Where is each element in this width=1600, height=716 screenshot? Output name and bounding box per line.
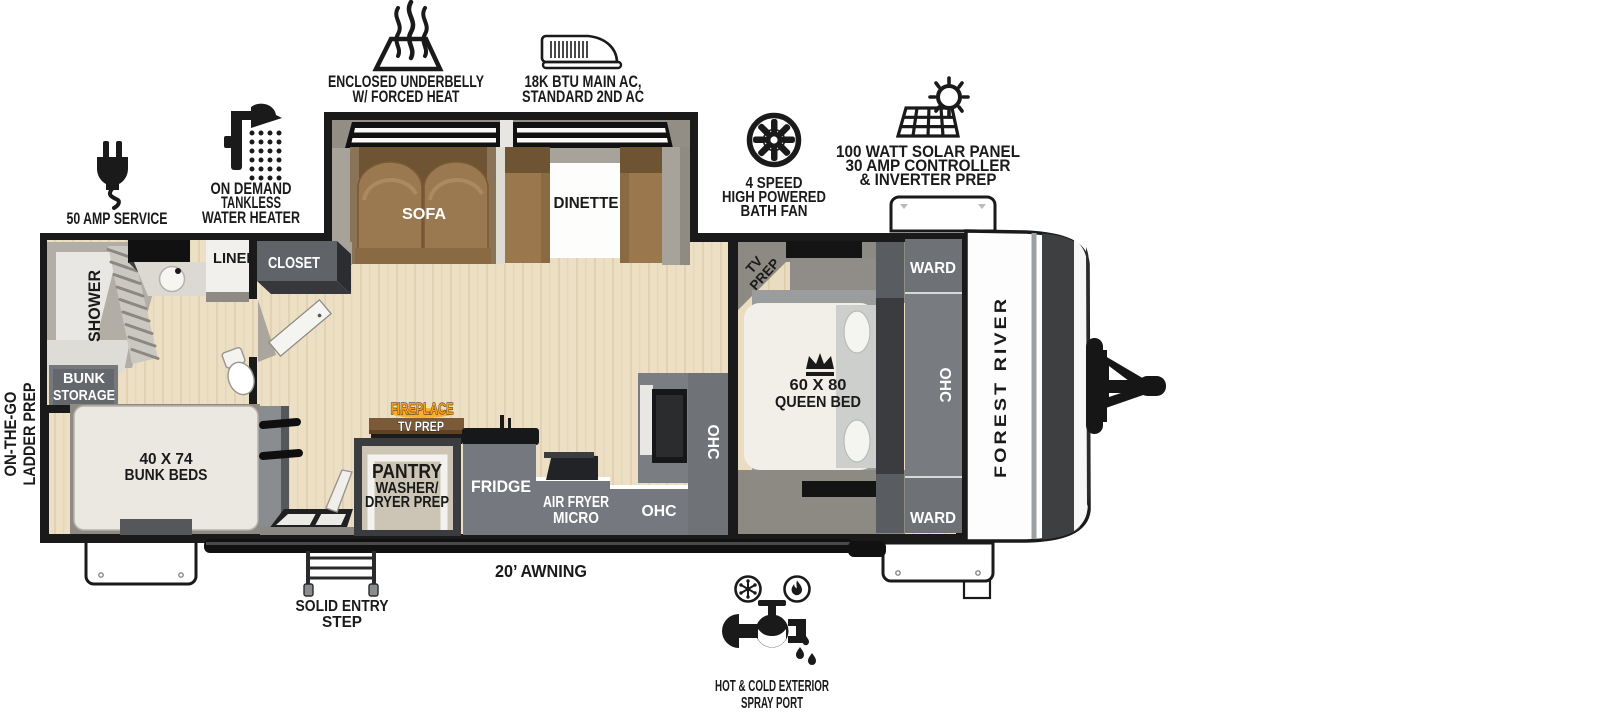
svg-text:MICRO: MICRO <box>553 510 599 527</box>
svg-text:TV PREP: TV PREP <box>398 419 444 434</box>
svg-text:& INVERTER PREP: & INVERTER PREP <box>860 170 997 189</box>
svg-text:FOREST RIVER: FOREST RIVER <box>992 296 1010 478</box>
svg-text:STEP: STEP <box>322 614 362 631</box>
svg-text:BUNK: BUNK <box>63 370 105 387</box>
svg-text:BUNK BEDS: BUNK BEDS <box>125 467 208 484</box>
svg-text:DINETTE: DINETTE <box>554 195 619 212</box>
svg-text:SHOWER: SHOWER <box>85 270 104 342</box>
svg-text:FIREPLACE: FIREPLACE <box>391 401 454 418</box>
svg-text:WATER HEATER: WATER HEATER <box>202 208 300 227</box>
svg-text:HOT & COLD EXTERIOR: HOT & COLD EXTERIOR <box>715 678 829 695</box>
svg-text:20’ AWNING: 20’ AWNING <box>495 561 587 581</box>
svg-text:WARD: WARD <box>910 260 956 277</box>
svg-text:STANDARD 2ND AC: STANDARD 2ND AC <box>522 87 644 106</box>
svg-text:BATH FAN: BATH FAN <box>741 203 808 220</box>
svg-text:QUEEN BED: QUEEN BED <box>775 394 861 411</box>
svg-text:OHC: OHC <box>642 503 677 520</box>
svg-text:LADDER PREP: LADDER PREP <box>20 383 39 486</box>
svg-text:CLOSET: CLOSET <box>268 255 320 272</box>
svg-text:SPRAY PORT: SPRAY PORT <box>741 695 803 712</box>
svg-text:SOFA: SOFA <box>402 206 446 223</box>
svg-text:AIR FRYER: AIR FRYER <box>543 494 609 511</box>
svg-text:FRIDGE: FRIDGE <box>471 478 531 496</box>
svg-text:STORAGE: STORAGE <box>53 387 115 404</box>
svg-text:SOLID ENTRY: SOLID ENTRY <box>296 598 389 615</box>
svg-text:LINEN: LINEN <box>213 250 257 267</box>
svg-text:WARD: WARD <box>910 510 956 527</box>
svg-text:OHC: OHC <box>936 368 953 403</box>
svg-text:DRYER PREP: DRYER PREP <box>365 494 449 511</box>
svg-text:60 X 80: 60 X 80 <box>790 377 847 394</box>
svg-text:ON-THE-GO: ON-THE-GO <box>1 392 20 477</box>
svg-text:50 AMP SERVICE: 50 AMP SERVICE <box>67 209 168 228</box>
svg-text:W/ FORCED HEAT: W/ FORCED HEAT <box>353 87 460 106</box>
svg-text:40 X 74: 40 X 74 <box>140 451 193 468</box>
svg-text:OHC: OHC <box>704 425 721 460</box>
